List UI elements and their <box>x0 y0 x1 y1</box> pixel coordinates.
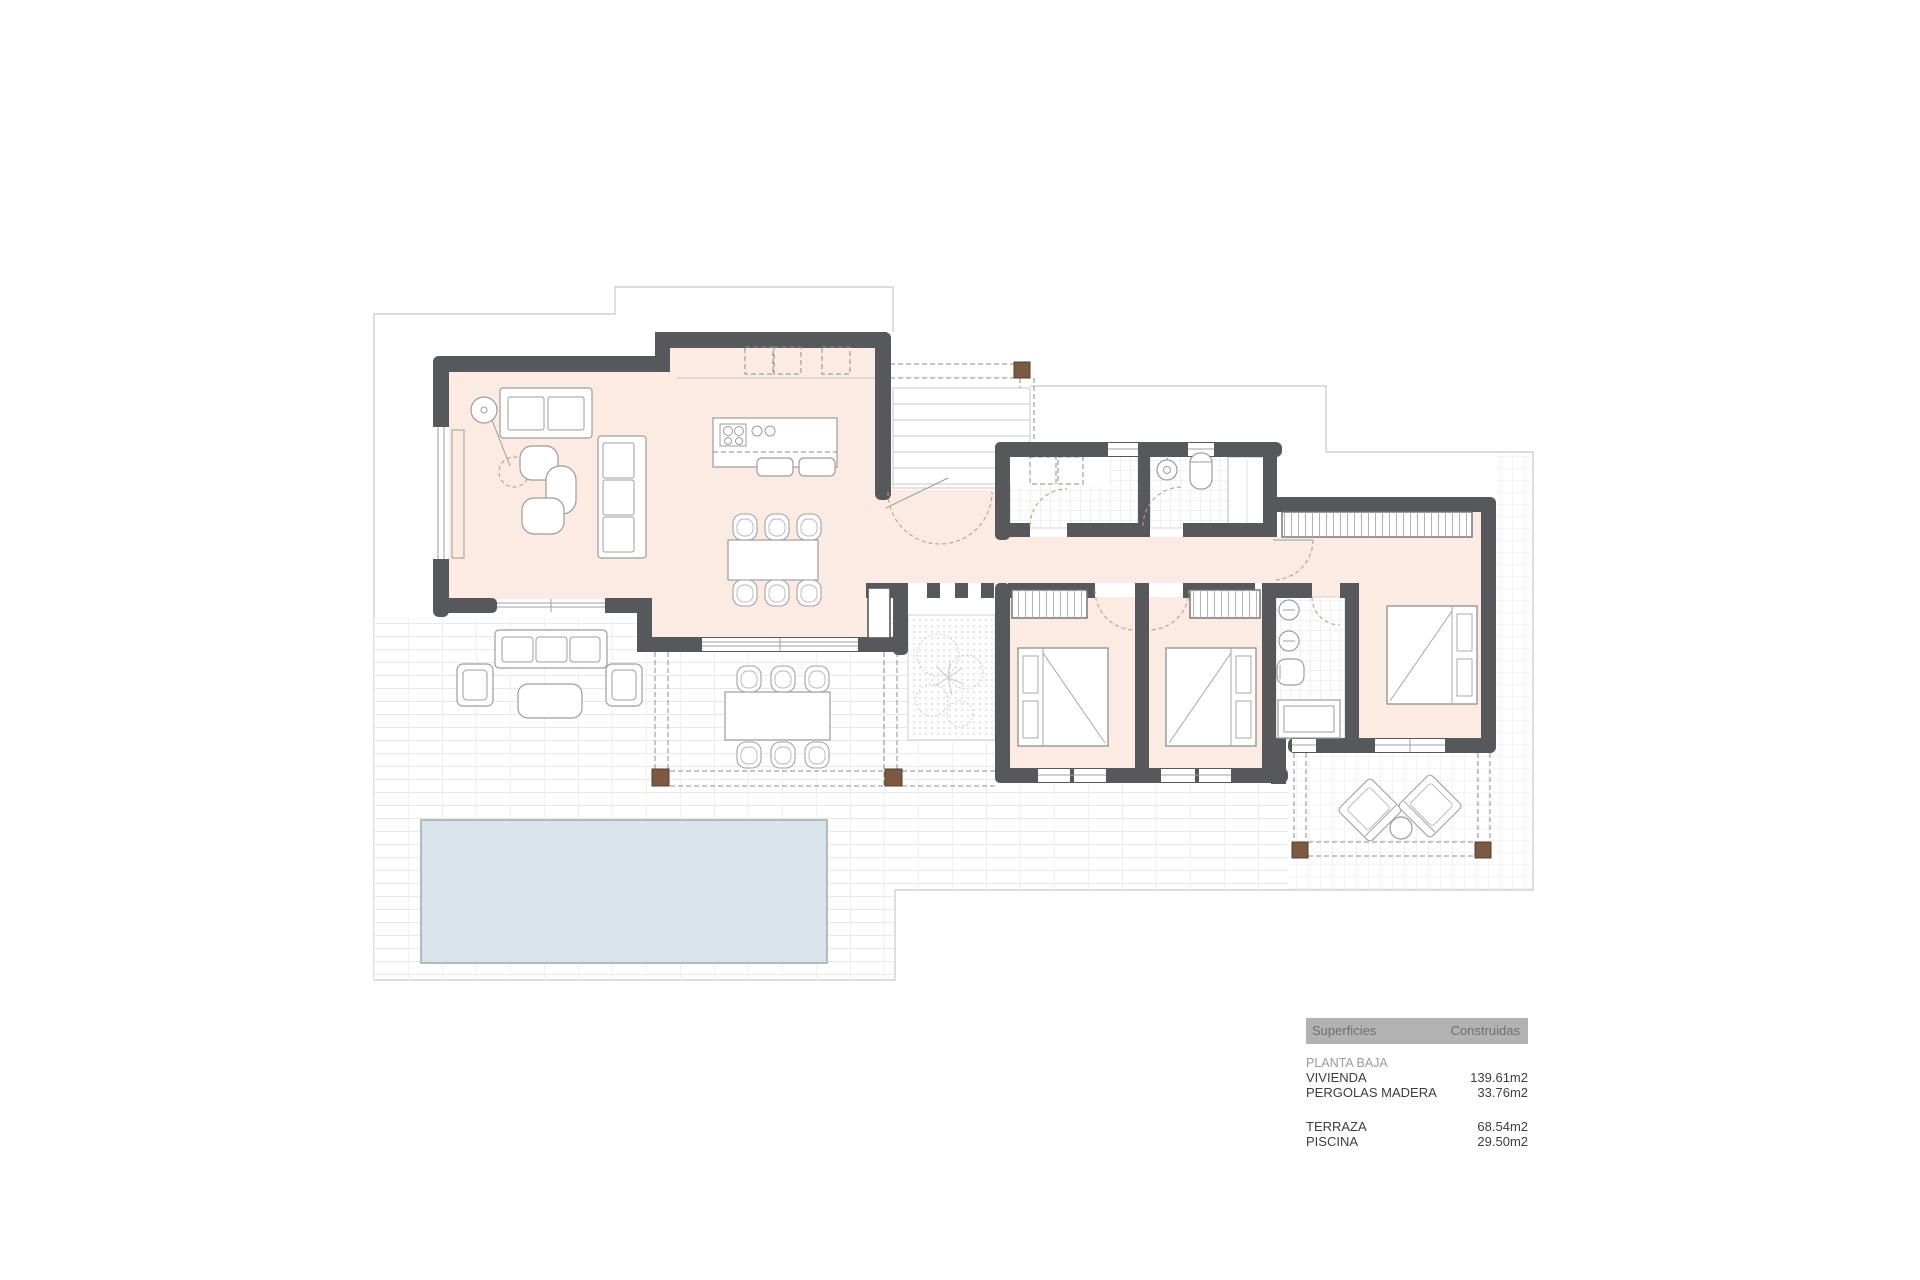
armchair <box>522 498 564 534</box>
dining-table <box>728 540 818 580</box>
legend-header-col1: Superficies <box>1312 1018 1376 1044</box>
legend-row-label: VIVIENDA <box>1306 1070 1367 1085</box>
legend-row: PERGOLAS MADERA 33.76m2 <box>1306 1085 1528 1100</box>
wardrobe-bedroom-2 <box>1190 590 1260 618</box>
areas-legend: Superficies Construidas PLANTA BAJA VIVI… <box>1306 1018 1528 1149</box>
pergola-post <box>885 769 902 786</box>
outdoor-dining-table <box>725 692 830 740</box>
courtyard-window <box>868 588 890 638</box>
laundry-counter <box>1010 455 1110 485</box>
legend-row-value: 33.76m2 <box>1477 1085 1528 1100</box>
toilet-icon <box>1277 659 1304 685</box>
bed-bedroom-2 <box>1166 648 1256 746</box>
bar-stool <box>757 458 793 476</box>
legend-row-value: 68.54m2 <box>1477 1119 1528 1134</box>
outdoor-dining <box>725 666 830 768</box>
terrace-side-table <box>1390 817 1412 839</box>
bar-stool <box>799 458 835 476</box>
bed-master <box>1387 606 1477 704</box>
outdoor-coffee-table <box>518 684 582 718</box>
toilet-icon <box>1190 453 1212 489</box>
courtyard-tree <box>908 615 995 740</box>
legend-row-value: 139.61m2 <box>1470 1070 1528 1085</box>
page: Superficies Construidas PLANTA BAJA VIVI… <box>0 0 1920 1280</box>
legend-header: Superficies Construidas <box>1306 1018 1528 1044</box>
trellis-post <box>955 583 968 598</box>
indoor-dining <box>728 514 821 606</box>
swimming-pool <box>421 820 827 963</box>
pergola-post <box>1014 362 1030 378</box>
pergola-post <box>1292 842 1308 858</box>
legend-row-value: 29.50m2 <box>1477 1134 1528 1149</box>
pergola-post <box>1475 842 1491 858</box>
legend-row-label: TERRAZA <box>1306 1119 1367 1134</box>
trellis-post <box>981 583 994 598</box>
legend-row-label: PERGOLAS MADERA <box>1306 1085 1437 1100</box>
legend-row-label: PISCINA <box>1306 1134 1358 1149</box>
floor-lamp-icon <box>471 397 497 423</box>
sofa-three-seat <box>598 436 646 558</box>
legend-row: PISCINA 29.50m2 <box>1306 1134 1528 1149</box>
legend-section-title: PLANTA BAJA <box>1306 1056 1528 1070</box>
legend-spacer <box>1306 1100 1528 1119</box>
legend-row: VIVIENDA 139.61m2 <box>1306 1070 1528 1085</box>
wardrobe-bedroom-1 <box>1012 590 1087 618</box>
pergola-post <box>652 769 669 786</box>
living-left-window <box>433 427 449 559</box>
trellis-post <box>927 583 940 598</box>
sink-icon <box>1157 460 1177 480</box>
floor-plan <box>0 0 1920 1280</box>
wardrobe-master <box>1282 512 1472 537</box>
legend-row: TERRAZA 68.54m2 <box>1306 1119 1528 1134</box>
legend-header-col2: Construidas <box>1451 1018 1520 1044</box>
bed-bedroom-1 <box>1018 648 1108 746</box>
